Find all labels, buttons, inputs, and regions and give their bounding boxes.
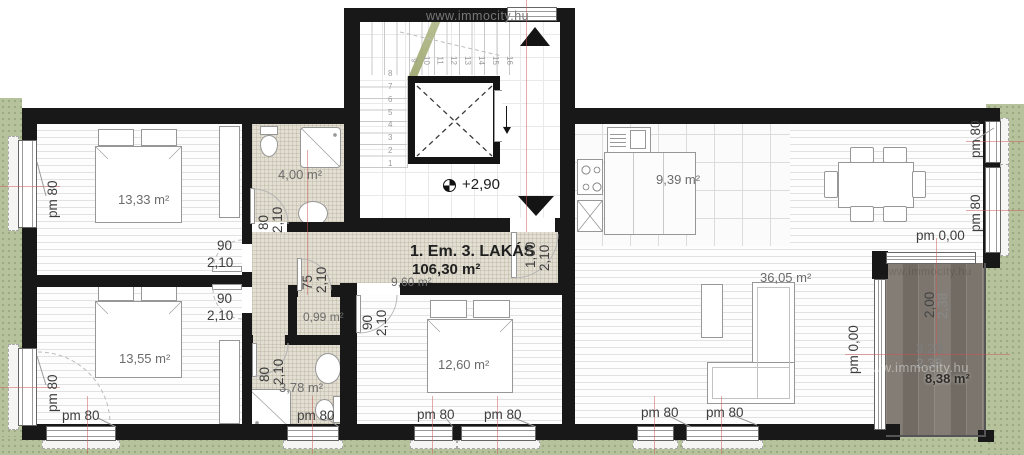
watermark-terrace-faint: www.immocity.hu [880,266,972,278]
wc-area-label: 0,99 m² [303,311,344,324]
watermark-terrace: www.immocity.hu [862,360,969,375]
terrace-dim-w2: 2,38 [936,293,950,319]
bedroom2-area-label: 13,55 m² [119,352,170,366]
hall-area-label: 9,60 m² [391,276,432,289]
bath2-door-height: 2,10 [272,359,286,385]
bath1-area-label: 4,00 m² [278,168,322,182]
parapet-label-left2: pm 80 [46,374,60,412]
terrace-dim-l1: 3,20 [916,342,942,356]
parapet-label-left1: pm 80 [46,180,60,218]
bedroom1-door-width: 90 [217,239,232,253]
entry-door-height: 2,10 [538,245,552,271]
bedroom2-door-height: 2,10 [207,309,233,323]
bedroom3-area-label: 12,60 m² [438,358,489,372]
bedroom1-area-label: 13,33 m² [118,193,169,207]
watermark-top: www.immocity.hu [426,9,529,23]
bedroom3-door-height: 2,10 [375,310,389,336]
living-area-label: 36,05 m² [760,271,811,285]
parapet-label-b4: pm 80 [484,408,522,422]
bedroom2-door-width: 90 [217,292,232,306]
apartment-title: 1. Em. 3. LAKÁS [410,244,534,261]
floor-plan: 87654321 910111213141516 +2,90 [0,0,1024,455]
parapet-label-b3: pm 80 [417,408,455,422]
bedroom1-door-height: 2,10 [207,256,233,270]
parapet-label-right2: pm 80 [969,194,983,232]
kitchen-area-label: 9,39 m² [656,173,700,187]
parapet-label-b1: pm 80 [62,409,100,423]
annotation-overlay [0,0,1024,455]
parapet-label-b5: pm 80 [641,406,679,420]
parapet-label-b2: pm 80 [297,409,335,423]
ground-level-dining: pm 0,00 [916,229,965,243]
ground-level-terrace-door: pm 0,00 [847,325,861,374]
parapet-label-b6: pm 80 [706,406,744,420]
parapet-label-right1: pm 80 [969,120,983,158]
bath1-door-height: 2,10 [271,207,285,233]
wc-door-height: 2,10 [315,267,329,293]
